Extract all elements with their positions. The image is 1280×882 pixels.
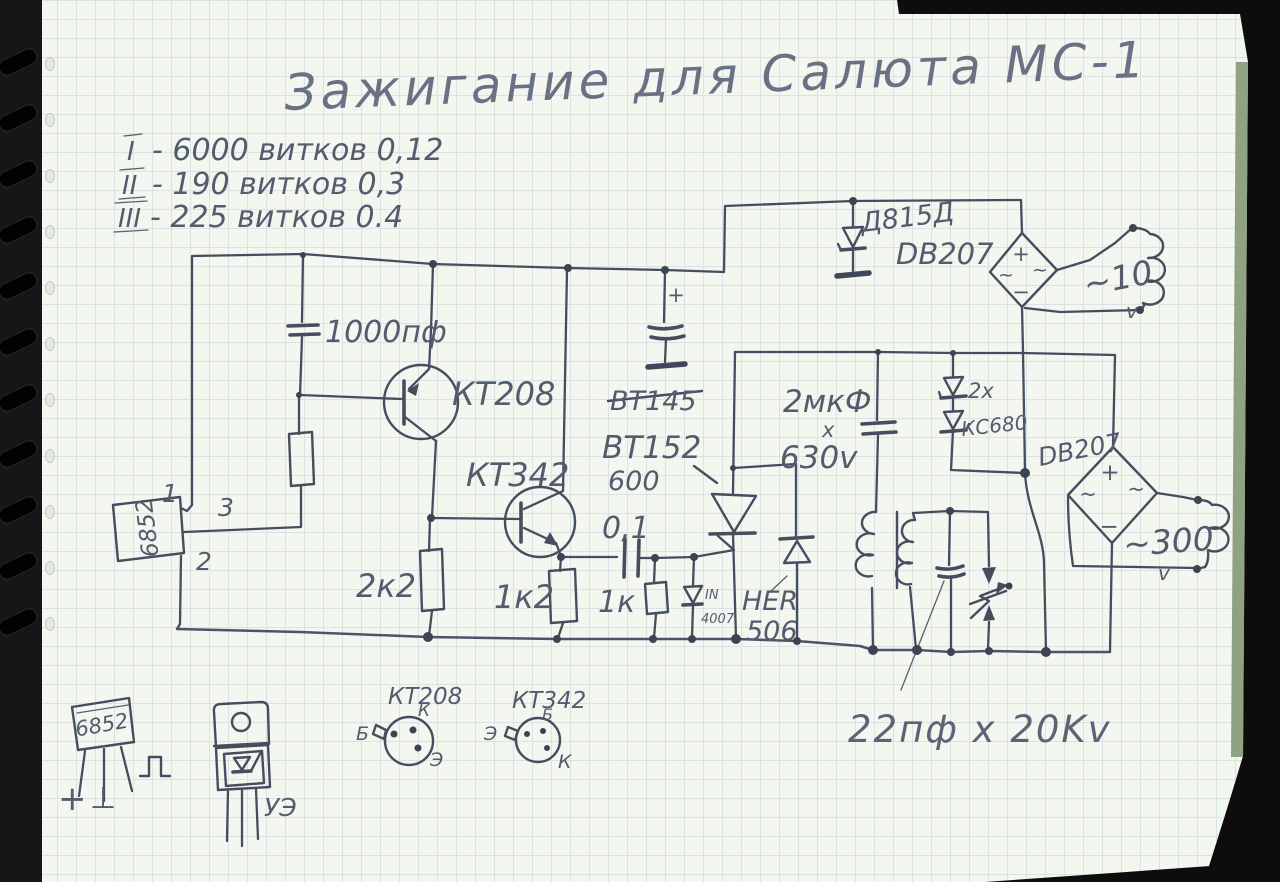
label-capacitor-2mkf: 2мкФ	[783, 384, 872, 420]
pinout-kt342-e: Э	[483, 723, 497, 745]
bridge1-ac-right: ~	[1032, 259, 1048, 281]
pinout-kt208-k: К	[418, 701, 431, 721]
winding-3-text: - 225 витков 0.4	[150, 200, 403, 235]
label-bt145: ВТ145	[610, 386, 697, 417]
pinout-kt208-e: Э	[429, 749, 443, 771]
winding-3-numeral: III	[118, 204, 141, 234]
bridge2-ac-right: ~	[1127, 477, 1145, 501]
pinout-sensor-plus: +	[58, 779, 87, 819]
pinout-kt342-b: Б	[542, 705, 553, 724]
label-diode-in: IN	[705, 588, 719, 603]
bridge2-minus: −	[1099, 514, 1118, 540]
label-kt342: КТ342	[466, 456, 569, 494]
label-kt208: КТ208	[452, 375, 555, 413]
label-capacitor-1000pf: 1000пф	[325, 315, 447, 350]
pinout-kt342-k: К	[558, 751, 573, 773]
label-coil-300v: ~300	[1122, 519, 1215, 564]
label-bt152-voltage: 600	[608, 466, 660, 497]
label-resistor-1k: 1к	[598, 585, 635, 620]
label-pin3: 3	[218, 493, 234, 522]
winding-1-numeral: I	[127, 137, 135, 167]
label-db207-top: DB207	[896, 237, 994, 271]
label-ecap-plus: +	[667, 283, 685, 307]
winding-2-numeral: II	[122, 171, 137, 201]
bridge2-plus: +	[1100, 460, 1119, 486]
label-her: HER	[742, 586, 798, 617]
label-capacitor-22pf: 22пф х 20Kv	[848, 708, 1112, 751]
label-coil-300v-unit: v	[1158, 561, 1171, 585]
winding-1-text: - 6000 витков 0,12	[152, 133, 443, 168]
bridge2-ac-left: ~	[1079, 482, 1097, 506]
pinout-sensor-gnd: ⊥	[90, 781, 116, 816]
label-zener-qty: 2х	[968, 379, 994, 403]
pinout-thyristor-gate: УЭ	[264, 793, 297, 822]
label-coil-10v-unit: v	[1126, 299, 1139, 323]
label-capacitor-01: 0,1	[602, 511, 650, 546]
pinout-kt208-b: Б	[356, 723, 369, 745]
label-her-number: 506	[746, 616, 798, 647]
scanned-notebook-photo: Зажигание для Салюта МС-1 I - 6000 витко…	[0, 0, 1280, 882]
label-resistor-2k2: 2к2	[356, 567, 416, 605]
label-630v: 630v	[780, 440, 858, 476]
label-resistor-1k2: 1к2	[494, 578, 554, 616]
label-mult-sign: х	[821, 418, 835, 442]
label-bt152: ВТ152	[602, 430, 701, 466]
binding-margin	[0, 0, 44, 882]
bridge1-minus: −	[1012, 280, 1030, 304]
label-pin2: 2	[196, 547, 212, 576]
label-pin1: 1	[162, 479, 178, 508]
bridge1-plus: +	[1012, 242, 1030, 266]
label-diode-4007: 4007	[701, 612, 735, 627]
winding-2-text: - 190 витков 0,3	[152, 167, 405, 202]
